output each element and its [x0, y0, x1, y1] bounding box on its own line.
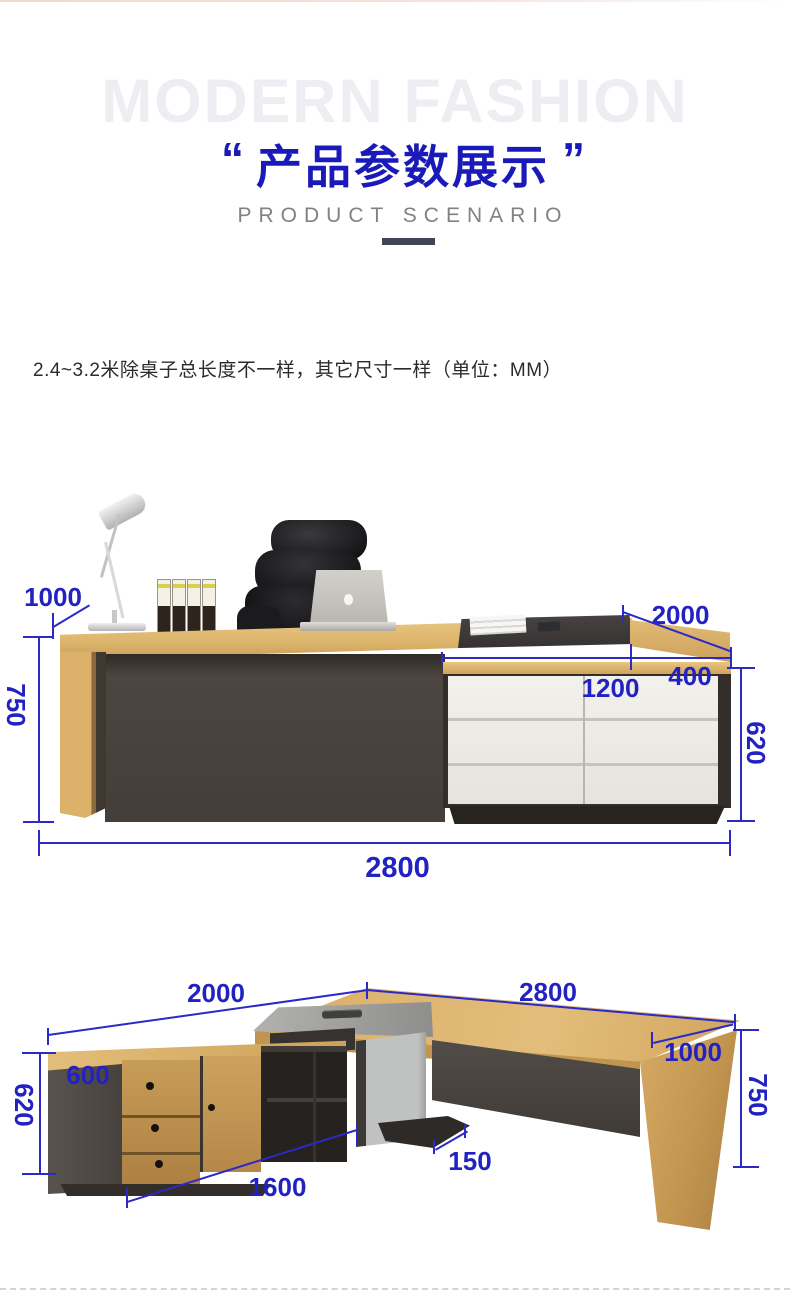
top-divider-line: [0, 0, 790, 2]
door-knob: [208, 1104, 215, 1111]
bottom-dashed-divider: [0, 1288, 790, 1290]
laptop-logo: [344, 594, 353, 605]
page-title: 产品参数展示: [256, 140, 550, 195]
desk-front-diagram: 1000 750 2000 400 1200 620 2800: [0, 480, 790, 900]
desk-left-leg: [60, 652, 106, 818]
drawer-knob: [151, 1124, 159, 1132]
product-parameter-page: MODERN FASHION “ 产品参数展示 ” PRODUCT SCENAR…: [0, 0, 790, 1295]
cabinet-plinth: [449, 806, 725, 824]
page-title-row: “ 产品参数展示 ”: [8, 140, 790, 195]
phone: [538, 621, 560, 631]
dim-main-depth: 1000: [658, 1039, 728, 1065]
laptop: [300, 570, 398, 632]
dim-desk-height: 750: [745, 1066, 771, 1124]
page-subtitle: PRODUCT SCENARIO: [8, 204, 790, 228]
dim-cabinet-height: 620: [743, 714, 769, 772]
desk-rear-diagram: 2000 2800 1000 750 600 620 150 1600: [0, 930, 790, 1295]
open-quote-mark: “: [221, 136, 244, 182]
dim-top-inset: 400: [660, 663, 720, 689]
dim-total-length: 2800: [355, 854, 440, 883]
close-quote-mark: ”: [562, 136, 585, 182]
cabinet-drawers: [122, 1060, 200, 1186]
dim-main-length: 2800: [508, 979, 588, 1005]
dim-cabinet-depth: 600: [58, 1062, 118, 1088]
book-set: [158, 580, 216, 632]
size-note: 2.4~3.2米除桌子总长度不一样，其它尺寸一样（单位：MM）: [33, 355, 562, 382]
dim-cabinet-length: 1600: [240, 1174, 315, 1200]
drawer-knob: [146, 1082, 154, 1090]
cable-slot: [322, 1009, 362, 1018]
dim-panel-thickness: 150: [440, 1148, 500, 1174]
dim-left-depth: 1000: [18, 584, 88, 610]
dim-desk-height: 750: [3, 675, 29, 735]
documents: [470, 615, 527, 636]
watermark-text: MODERN FASHION: [0, 66, 790, 136]
dim-cabinet-length: 1200: [573, 675, 648, 701]
dim-cabinet-height: 620: [11, 1076, 37, 1134]
drawer-knob: [155, 1160, 163, 1168]
cabinet-door: [203, 1056, 261, 1172]
modesty-panel: [105, 654, 445, 822]
divider-bar: [382, 238, 435, 245]
dim-return-length: 2000: [176, 980, 256, 1006]
